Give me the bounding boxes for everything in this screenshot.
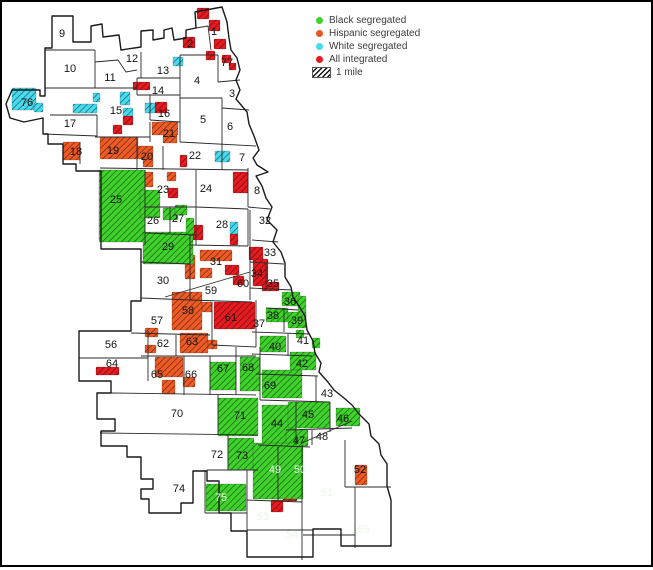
area-label-67: 67 [217,363,229,375]
tract-patch-red-hatched [180,155,187,167]
legend-dot-icon [316,43,323,50]
area-label-31: 31 [210,256,222,268]
legend-dot-icon [316,30,323,37]
tract-patch-cyan-hatched [230,222,238,234]
area-label-68: 68 [242,362,254,374]
area-label-6: 6 [227,121,233,133]
area-label-7: 7 [239,152,245,164]
legend-label: 1 mile [336,66,363,79]
area-label-23: 23 [157,184,169,196]
tract-patch-red-hatched [233,172,248,193]
area-label-30: 30 [157,275,169,287]
area-label-14: 14 [152,85,164,97]
area-label-45: 45 [302,409,314,421]
tract-patch-orange-hatched [167,172,176,181]
tract-patch-red-hatched [133,82,150,90]
tract-patch-cyan-hatched [73,104,97,113]
area-label-35: 35 [267,278,279,290]
legend-dot-icon [316,17,323,24]
area-label-57: 57 [151,315,163,327]
city-outline [6,7,391,557]
area-label-43: 43 [321,388,333,400]
area-label-22: 22 [189,150,201,162]
area-label-40: 40 [269,341,281,353]
area-label-36: 36 [284,296,296,308]
area-label-46: 46 [337,413,349,425]
tract-patch-red-hatched [271,500,283,512]
area-label-21: 21 [163,128,175,140]
area-label-63: 63 [186,336,198,348]
legend-label: Black segregated [329,14,406,27]
legend-hatch-icon [312,67,331,78]
area-label-62: 62 [157,338,169,350]
tract-patch-cyan-hatched [34,103,43,112]
area-label-17: 17 [64,118,76,130]
area-label-74: 74 [173,483,185,495]
area-label-3: 3 [229,88,235,100]
area-label-41: 41 [297,335,309,347]
tract-patch-green-hatched [186,218,194,234]
tract-patch-orange-hatched [162,380,175,394]
tract-patch-red-hatched [123,116,133,125]
area-label-72: 72 [211,449,223,461]
area-label-18: 18 [70,146,82,158]
area-label-5: 5 [200,114,206,126]
area-label-32: 32 [259,215,271,227]
area-label-58: 58 [182,305,194,317]
area-label-16: 16 [158,108,170,120]
area-label-20: 20 [141,151,153,163]
page: { "title": "Chicago community areas segr… [0,0,653,570]
area-label-25: 25 [110,194,122,206]
area-label-29: 29 [162,241,174,253]
tract-patch-red-hatched [206,51,215,60]
tract-patch-cyan-hatched [215,151,230,162]
tract-patch-red-hatched [168,188,178,198]
legend-item-1: Hispanic segregated [316,27,420,40]
area-label-42: 42 [296,358,308,370]
tract-patch-orange-hatched [145,345,156,353]
tract-patch-red-hatched [225,265,239,275]
area-label-44: 44 [271,418,283,430]
area-label-50: 50 [294,464,306,476]
area-label-53: 53 [257,511,269,523]
area-label-59: 59 [205,285,217,297]
area-label-8: 8 [254,185,260,197]
area-label-66: 66 [185,369,197,381]
tract-patch-red-hatched [193,225,203,240]
area-label-13: 13 [157,65,169,77]
area-label-38: 38 [267,310,279,322]
area-label-19: 19 [107,145,119,157]
tract-patch-orange-hatched [208,340,217,349]
legend-dot-icon [316,56,323,63]
tract-patch-red-hatched [214,39,226,49]
area-label-9: 9 [59,28,65,40]
area-label-27: 27 [172,213,184,225]
area-label-71: 71 [234,410,246,422]
city-area-fill [6,7,391,557]
tract-patch-cyan-hatched [93,93,100,102]
area-label-64: 64 [106,358,118,370]
area-label-10: 10 [64,63,76,75]
area-label-47: 47 [293,435,305,447]
area-label-28: 28 [216,219,228,231]
area-label-12: 12 [126,53,138,65]
area-label-15: 15 [110,105,122,117]
legend-label: All integrated [329,53,387,66]
area-label-73: 73 [236,450,248,462]
area-label-49: 49 [269,464,281,476]
area-label-70: 70 [171,408,183,420]
tract-patch-red-hatched [230,234,238,245]
area-label-11: 11 [104,72,115,84]
legend-label: Hispanic segregated [329,27,420,40]
tract-patch-orange-hatched [200,268,212,278]
area-label-56: 56 [105,339,117,351]
legend-item-0: Black segregated [316,14,420,27]
area-label-4: 4 [194,75,200,87]
tract-patch-cyan-hatched [120,92,130,105]
area-label-39: 39 [291,315,303,327]
area-label-65: 65 [151,369,163,381]
area-label-48: 48 [316,431,328,443]
area-label-24: 24 [200,183,212,195]
chicago-segregation-map: 1234567891011121314151617181920212223242… [0,0,653,570]
legend-item-3: All integrated [316,53,420,66]
area-label-51: 51 [321,487,333,499]
area-label-1: 1 [211,26,217,38]
legend-item-2: White segregated [316,40,420,53]
area-label-60: 60 [237,278,249,290]
area-label-77: 77 [221,57,233,69]
legend-label: White segregated [329,40,407,53]
area-label-61: 61 [225,312,237,324]
tract-patch-orange-hatched [202,302,212,312]
area-label-26: 26 [147,215,159,227]
area-label-34: 34 [251,268,263,280]
tract-patch-cyan-hatched [123,108,133,116]
tract-patch-green-hatched [99,170,145,242]
area-label-37: 37 [253,318,265,330]
area-label-55: 55 [358,524,370,536]
area-label-52: 52 [354,464,366,476]
area-label-2: 2 [187,38,193,50]
area-label-33: 33 [264,247,276,259]
tract-patch-red-hatched [113,125,122,134]
area-label-76: 76 [21,97,33,109]
legend-item-4: 1 mile [316,66,420,79]
area-label-54: 54 [286,529,298,541]
tract-patch-red-hatched [249,247,263,260]
map-legend: Black segregatedHispanic segregatedWhite… [316,14,420,79]
tract-patch-cyan-hatched [173,57,183,66]
area-label-69: 69 [264,380,276,392]
tract-patch-orange-hatched [145,328,158,337]
area-label-75: 75 [215,492,227,504]
